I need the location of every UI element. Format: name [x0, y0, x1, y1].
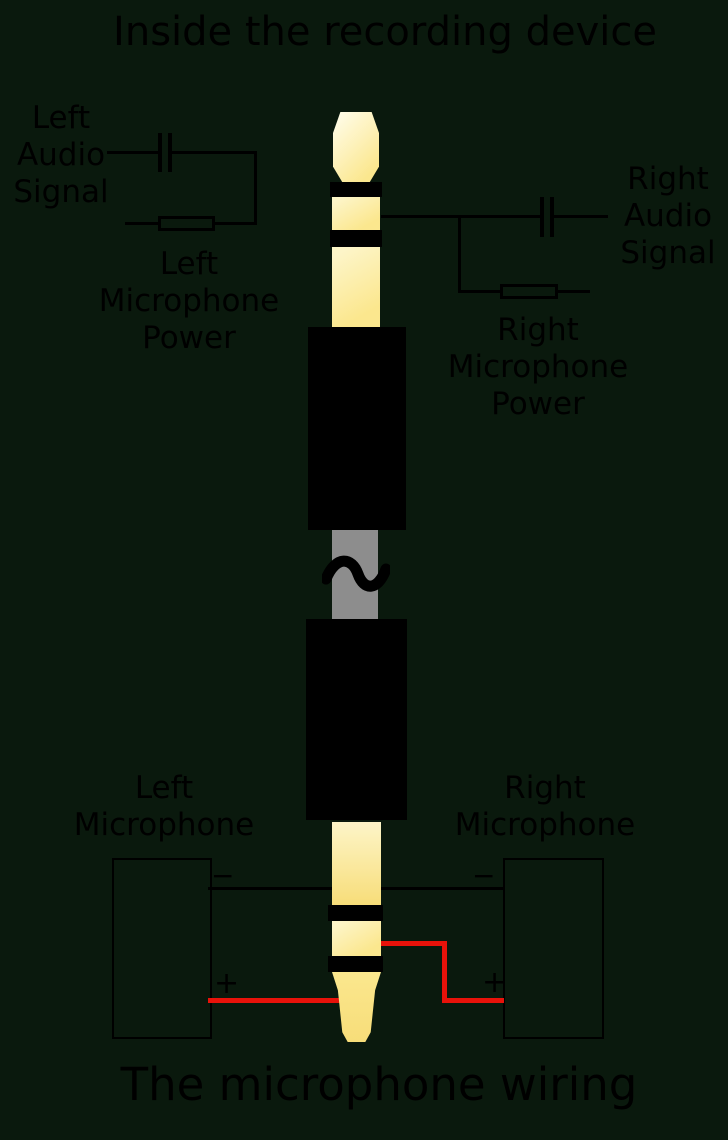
label-right-microphone: Right Microphone: [435, 770, 655, 844]
jack-body-lower: [306, 619, 407, 820]
right-plus-sign: +: [482, 968, 507, 998]
right-microphone-box: [503, 858, 604, 1039]
red-wire-right-plus-vertical: [442, 941, 447, 1003]
jack-tip-bottom: [332, 972, 381, 1042]
red-wire-left-plus: [208, 998, 343, 1003]
jack-insulator-band-2: [330, 230, 382, 247]
wire-left-audio-in: [107, 151, 159, 154]
jack-tip: [333, 112, 379, 182]
label-left-mic-power: Left Microphone Power: [79, 246, 299, 357]
trrs-wiring-diagram: Inside the recording device The micropho…: [0, 0, 728, 1140]
label-left-microphone: Left Microphone: [54, 770, 274, 844]
jack-ring-1: [332, 197, 380, 230]
jack-shaft-bottom: [332, 822, 381, 905]
wire-right-junction-vertical: [458, 215, 461, 293]
right-minus-sign: −: [472, 862, 495, 890]
jack-insulator-band-4: [328, 956, 383, 972]
break-squiggle-icon: [322, 553, 390, 597]
resistor-right-icon: [500, 284, 558, 299]
red-wire-right-plus-top: [378, 941, 447, 946]
capacitor-left-icon: [158, 133, 162, 172]
wire-left-junction-vertical: [254, 151, 257, 225]
label-right-mic-power: Right Microphone Power: [428, 312, 648, 423]
left-plus-sign: +: [214, 969, 239, 999]
left-minus-sign: −: [211, 862, 234, 890]
jack-ring-3: [332, 921, 381, 956]
jack-ring-2: [332, 247, 380, 327]
resistor-left-icon: [158, 216, 215, 231]
wire-left-audio-out: [172, 151, 257, 154]
wire-right-audio-out: [554, 215, 608, 218]
title-top: Inside the recording device: [42, 8, 728, 56]
title-bottom: The microphone wiring: [30, 1058, 728, 1112]
label-left-audio-signal: Left Audio Signal: [6, 100, 116, 211]
capacitor-right-icon: [540, 197, 544, 237]
jack-insulator-band-1: [330, 182, 382, 197]
red-wire-right-plus-bottom: [442, 998, 504, 1003]
left-microphone-box: [112, 858, 212, 1039]
jack-body-upper: [308, 327, 406, 530]
label-right-audio-signal: Right Audio Signal: [613, 161, 723, 272]
jack-insulator-band-3: [328, 905, 383, 921]
